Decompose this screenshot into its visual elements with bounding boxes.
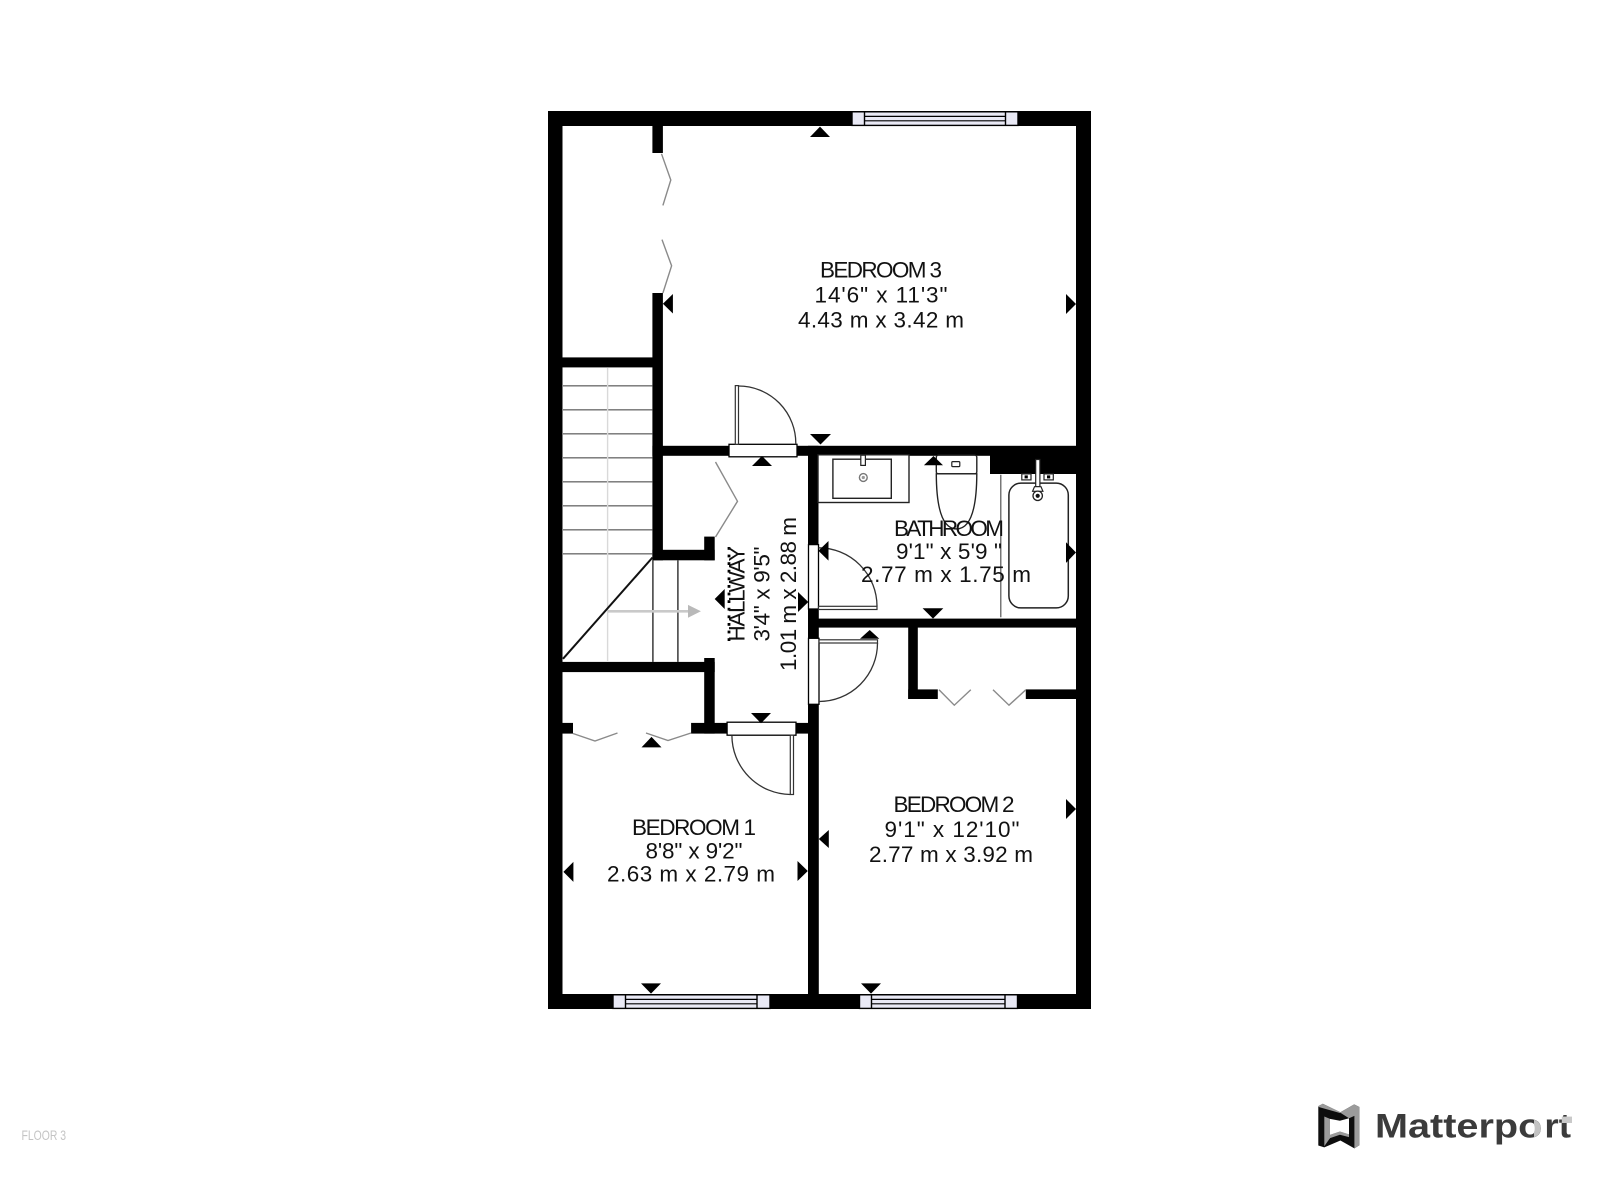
svg-text:Matterpo: Matterpo (1375, 1107, 1542, 1145)
svg-text:2.77 m x 3.92 m: 2.77 m x 3.92 m (869, 842, 1033, 867)
svg-text:HALLWAY: HALLWAY (725, 547, 750, 642)
svg-text:BEDROOM 2: BEDROOM 2 (894, 792, 1015, 817)
svg-text:9'1" x 12'10": 9'1" x 12'10" (885, 817, 1020, 842)
svg-text:BATHROOM: BATHROOM (894, 516, 1004, 541)
svg-text:rt: rt (1544, 1107, 1571, 1145)
svg-text:1.01 m x 2.88 m: 1.01 m x 2.88 m (776, 517, 801, 671)
svg-text:8'8" x 9'2": 8'8" x 9'2" (646, 838, 743, 863)
svg-text:FLOOR 3: FLOOR 3 (22, 1127, 67, 1143)
svg-text:4.43 m x 3.42 m: 4.43 m x 3.42 m (798, 308, 964, 333)
svg-text:2.77 m x 1.75 m: 2.77 m x 1.75 m (861, 562, 1031, 587)
svg-text:2.63 m x 2.79 m: 2.63 m x 2.79 m (607, 862, 775, 887)
svg-text:14'6" x 11'3": 14'6" x 11'3" (815, 283, 948, 308)
svg-text:BEDROOM 3: BEDROOM 3 (820, 258, 942, 283)
svg-text:9'1" x 5'9 ": 9'1" x 5'9 " (896, 539, 1002, 564)
svg-text:BEDROOM 1: BEDROOM 1 (632, 815, 756, 840)
svg-text:3'4" x 9'5": 3'4" x 9'5" (750, 547, 775, 642)
